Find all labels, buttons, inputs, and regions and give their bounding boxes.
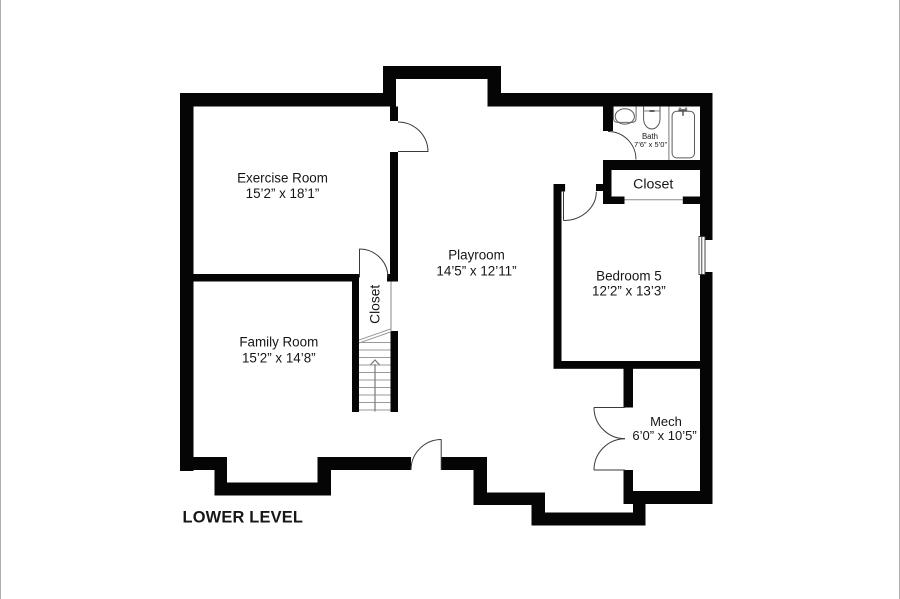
svg-text:Bedroom 5: Bedroom 5 [596,269,662,284]
svg-text:Mech: Mech [650,414,682,429]
svg-text:14’5” x 12’11”: 14’5” x 12’11” [436,263,516,278]
svg-text:12’2” x 13’3”: 12’2” x 13’3” [592,284,666,299]
svg-text:6’0” x 10’5”: 6’0” x 10’5” [632,428,696,443]
svg-text:Exercise Room: Exercise Room [237,170,328,185]
svg-text:Family Room: Family Room [239,335,318,350]
svg-text:15’2” x 18’1”: 15’2” x 18’1” [246,186,320,201]
svg-text:Closet: Closet [633,177,673,193]
svg-text:Closet: Closet [368,285,383,324]
svg-text:7’6” x 5’0”: 7’6” x 5’0” [634,140,667,149]
svg-text:Playroom: Playroom [448,248,505,263]
svg-text:15’2” x 14’8”: 15’2” x 14’8” [242,351,316,366]
svg-text:LOWER LEVEL: LOWER LEVEL [183,508,304,526]
